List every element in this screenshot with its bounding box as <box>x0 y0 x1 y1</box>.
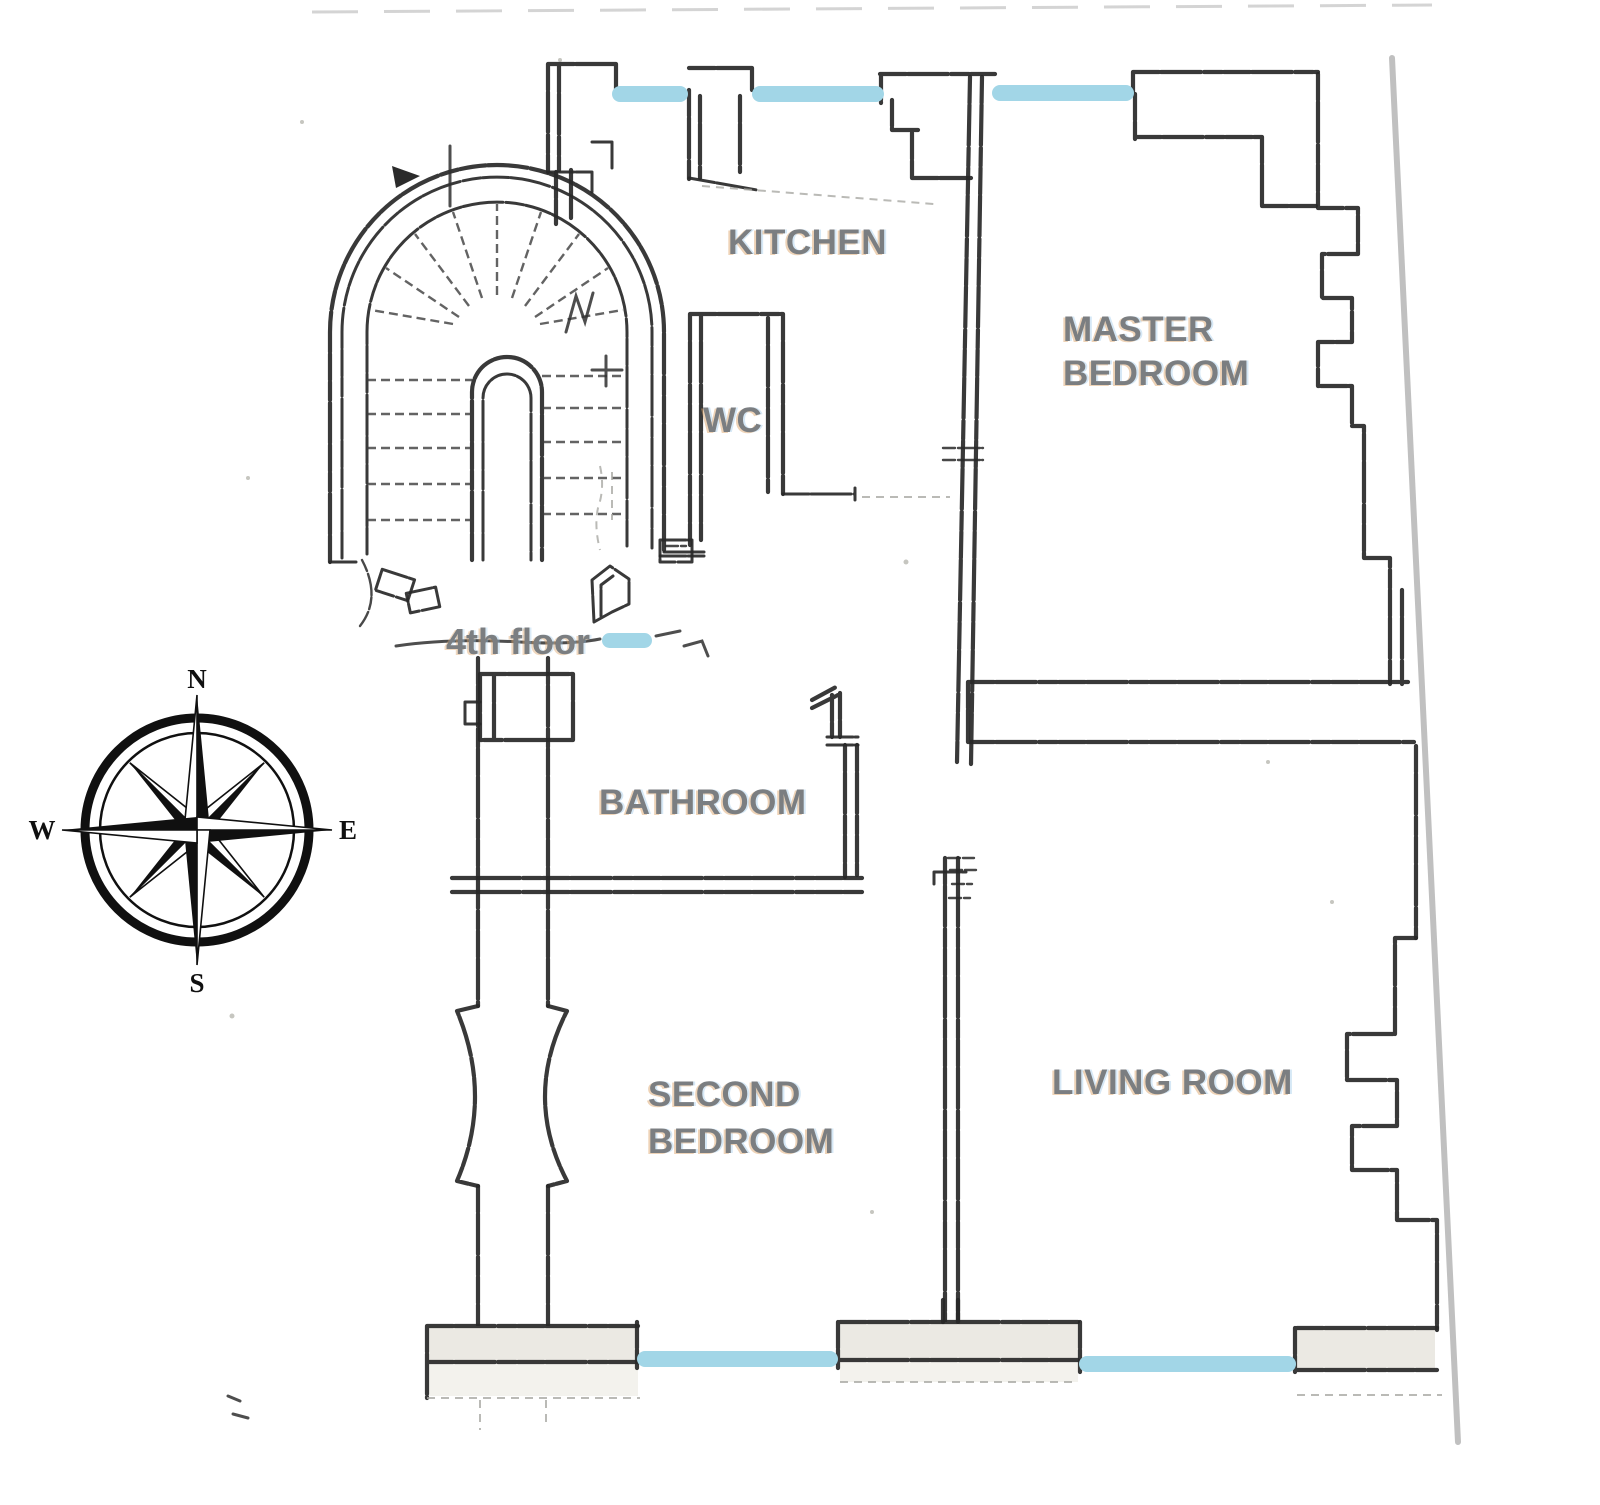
south-window-second-bedroom <box>637 1351 838 1367</box>
north-window-kitchen-left <box>612 86 688 102</box>
west-wall-second-bedroom <box>457 658 567 1430</box>
room-label-text: SECOND <box>648 1071 834 1118</box>
room-label-text: BEDROOM <box>1063 352 1249 396</box>
floor-level-label: 4th floor <box>446 622 590 662</box>
compass-east-label: E <box>339 815 357 845</box>
staircase-drawing <box>330 146 708 656</box>
east-wall-master-bedroom <box>1318 74 1390 684</box>
floor-plan-page: KITCHEN MASTER BEDROOM WC BATHROOM SECON… <box>0 0 1600 1505</box>
room-label-text: MASTER <box>1063 308 1249 352</box>
south-wall <box>427 1300 1442 1398</box>
compass-rose: N E S W <box>30 655 370 1015</box>
master-bedroom-south-wall <box>968 590 1416 938</box>
compass-cardinal-points <box>62 695 332 965</box>
stair-landing-highlight <box>602 633 652 648</box>
room-label-second-bedroom: SECOND BEDROOM <box>648 1071 834 1165</box>
room-label-living-room: LIVING ROOM <box>1052 1060 1293 1105</box>
room-label-text: LIVING ROOM <box>1052 1060 1293 1105</box>
compass-south-label: S <box>189 968 204 998</box>
room-label-text: BATHROOM <box>599 780 807 825</box>
room-label-text: KITCHEN <box>728 220 887 265</box>
compass-west-label: W <box>29 815 56 845</box>
north-window-kitchen-right <box>752 86 884 102</box>
room-label-master-bedroom: MASTER BEDROOM <box>1063 308 1249 396</box>
south-window-living-room <box>1079 1356 1296 1372</box>
room-label-wc: WC <box>703 398 762 443</box>
room-label-kitchen: KITCHEN <box>728 220 887 265</box>
north-window-master-bedroom <box>992 85 1134 101</box>
room-label-text: WC <box>703 398 762 443</box>
room-label-text: BEDROOM <box>648 1118 834 1165</box>
compass-north-label: N <box>187 664 207 694</box>
room-label-bathroom: BATHROOM <box>599 780 807 825</box>
